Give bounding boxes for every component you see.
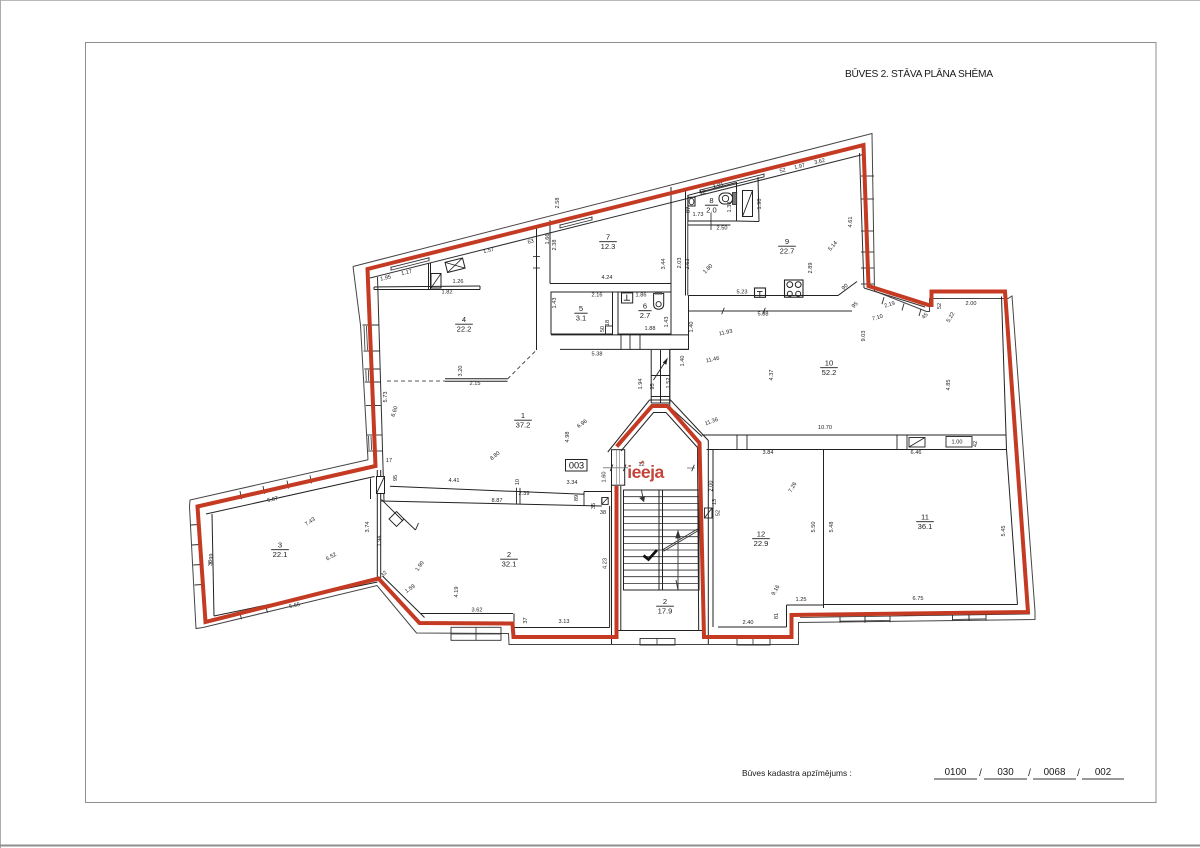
svg-text:37.2: 37.2 bbox=[516, 421, 531, 430]
svg-text:1.40: 1.40 bbox=[689, 322, 695, 333]
svg-text:35: 35 bbox=[591, 503, 597, 509]
svg-text:3.13: 3.13 bbox=[559, 619, 570, 625]
svg-text:10: 10 bbox=[825, 359, 833, 368]
svg-text:1.43: 1.43 bbox=[664, 317, 670, 328]
svg-text:5.23: 5.23 bbox=[737, 290, 748, 296]
svg-text:5.38: 5.38 bbox=[592, 352, 603, 358]
svg-text:9: 9 bbox=[785, 237, 789, 246]
svg-text:2.16: 2.16 bbox=[592, 293, 603, 299]
svg-text:/: / bbox=[979, 768, 982, 779]
svg-text:1.94: 1.94 bbox=[638, 379, 644, 390]
svg-text:2.00: 2.00 bbox=[709, 481, 715, 492]
svg-text:002: 002 bbox=[1095, 767, 1111, 778]
svg-text:81: 81 bbox=[774, 613, 780, 619]
svg-text:1.88: 1.88 bbox=[645, 326, 656, 332]
svg-text:52: 52 bbox=[937, 303, 943, 309]
svg-text:17.9: 17.9 bbox=[658, 607, 673, 616]
svg-text:3.62: 3.62 bbox=[472, 608, 483, 614]
svg-text:4.98: 4.98 bbox=[565, 432, 571, 443]
svg-text:003: 003 bbox=[569, 461, 584, 471]
svg-text:6: 6 bbox=[643, 302, 647, 311]
svg-text:32.1: 32.1 bbox=[502, 560, 517, 569]
svg-text:38: 38 bbox=[600, 510, 606, 516]
svg-text:3: 3 bbox=[278, 541, 282, 550]
svg-text:3.44: 3.44 bbox=[661, 259, 667, 270]
svg-text:1.94: 1.94 bbox=[377, 536, 383, 547]
svg-text:95: 95 bbox=[393, 475, 399, 481]
svg-text:2: 2 bbox=[663, 597, 667, 606]
svg-text:22.1: 22.1 bbox=[273, 550, 288, 559]
svg-text:22.9: 22.9 bbox=[754, 539, 769, 548]
svg-text:1.26: 1.26 bbox=[453, 279, 464, 285]
svg-text:11: 11 bbox=[921, 513, 929, 522]
svg-text:50: 50 bbox=[600, 326, 606, 332]
svg-text:2.50: 2.50 bbox=[717, 226, 728, 232]
svg-text:1.66: 1.66 bbox=[545, 234, 551, 245]
svg-text:030: 030 bbox=[997, 767, 1014, 778]
svg-text:13: 13 bbox=[712, 499, 718, 505]
svg-text:BŪVES 2. STĀVA PLĀNA SHĒMA: BŪVES 2. STĀVA PLĀNA SHĒMA bbox=[845, 68, 993, 80]
svg-text:10: 10 bbox=[515, 479, 521, 485]
svg-text:2.38: 2.38 bbox=[552, 240, 558, 251]
svg-text:2.40: 2.40 bbox=[743, 620, 754, 626]
svg-text:1.38: 1.38 bbox=[727, 202, 733, 213]
svg-text:1.00: 1.00 bbox=[952, 440, 963, 446]
svg-text:6.75: 6.75 bbox=[913, 596, 924, 602]
svg-text:1.86: 1.86 bbox=[636, 293, 647, 299]
svg-text:17: 17 bbox=[386, 458, 392, 464]
svg-text:22.7: 22.7 bbox=[780, 247, 795, 256]
svg-text:8: 8 bbox=[709, 196, 713, 205]
svg-text:1.43: 1.43 bbox=[552, 298, 558, 309]
svg-text:Būves kadastra apzīmējums :: Būves kadastra apzīmējums : bbox=[742, 768, 852, 778]
svg-text:5.50: 5.50 bbox=[811, 522, 817, 533]
svg-text:0068: 0068 bbox=[1044, 767, 1066, 778]
svg-text:5: 5 bbox=[579, 304, 583, 313]
svg-text:3.74: 3.74 bbox=[365, 522, 371, 533]
svg-text:0100: 0100 bbox=[945, 767, 967, 778]
svg-text:/: / bbox=[1077, 768, 1080, 779]
svg-text:1.40: 1.40 bbox=[680, 356, 686, 367]
svg-text:52: 52 bbox=[715, 510, 721, 516]
svg-text:10.70: 10.70 bbox=[818, 425, 832, 431]
svg-text:5.38: 5.38 bbox=[758, 312, 769, 318]
svg-text:3.84: 3.84 bbox=[763, 450, 774, 456]
svg-text:3.34: 3.34 bbox=[567, 480, 578, 486]
svg-text:2.00: 2.00 bbox=[966, 301, 977, 307]
svg-text:2.03: 2.03 bbox=[677, 258, 683, 269]
svg-text:1: 1 bbox=[521, 411, 525, 420]
svg-text:87: 87 bbox=[686, 207, 692, 213]
svg-text:6.46: 6.46 bbox=[911, 450, 922, 456]
svg-text:52.2: 52.2 bbox=[822, 368, 837, 377]
svg-text:5.45: 5.45 bbox=[1001, 526, 1007, 537]
svg-text:3.1: 3.1 bbox=[576, 314, 587, 323]
svg-text:5.73: 5.73 bbox=[383, 392, 389, 403]
svg-text:4: 4 bbox=[462, 315, 466, 324]
svg-text:1.98: 1.98 bbox=[757, 199, 763, 210]
svg-text:2.58: 2.58 bbox=[555, 198, 561, 209]
svg-text:4.23: 4.23 bbox=[602, 558, 608, 569]
svg-text:2.63: 2.63 bbox=[685, 259, 691, 270]
svg-text:2.0: 2.0 bbox=[706, 206, 717, 215]
svg-text:4.24: 4.24 bbox=[602, 275, 613, 281]
svg-text:1.25: 1.25 bbox=[796, 597, 807, 603]
svg-text:8.87: 8.87 bbox=[492, 498, 503, 504]
svg-text:38: 38 bbox=[208, 560, 214, 566]
svg-text:5.48: 5.48 bbox=[829, 522, 835, 533]
svg-text:37: 37 bbox=[523, 617, 529, 623]
svg-text:/: / bbox=[1028, 768, 1031, 779]
svg-text:4.19: 4.19 bbox=[454, 587, 460, 598]
svg-text:12.3: 12.3 bbox=[601, 242, 616, 251]
svg-text:2.7: 2.7 bbox=[640, 311, 651, 320]
svg-text:2.39: 2.39 bbox=[519, 491, 530, 497]
svg-text:89: 89 bbox=[574, 495, 580, 501]
svg-text:4.41: 4.41 bbox=[449, 478, 460, 484]
svg-text:22.2: 22.2 bbox=[457, 325, 472, 334]
svg-text:1.82: 1.82 bbox=[442, 290, 453, 296]
svg-text:4.37: 4.37 bbox=[769, 370, 775, 381]
svg-text:18: 18 bbox=[605, 320, 611, 326]
svg-text:4.61: 4.61 bbox=[848, 217, 854, 228]
svg-text:1.60: 1.60 bbox=[602, 472, 608, 483]
svg-text:9.03: 9.03 bbox=[861, 331, 867, 342]
svg-text:ieeja: ieeja bbox=[627, 462, 664, 482]
svg-text:4.85: 4.85 bbox=[946, 380, 952, 391]
svg-text:95: 95 bbox=[650, 383, 656, 389]
svg-text:2: 2 bbox=[507, 550, 511, 559]
svg-text:36.1: 36.1 bbox=[918, 522, 933, 531]
svg-text:1.52: 1.52 bbox=[666, 378, 672, 389]
svg-text:1.73: 1.73 bbox=[693, 212, 704, 218]
svg-text:3.20: 3.20 bbox=[458, 366, 464, 377]
svg-text:2.15: 2.15 bbox=[470, 381, 481, 387]
svg-text:12: 12 bbox=[757, 530, 765, 539]
svg-text:7: 7 bbox=[606, 233, 610, 242]
svg-text:42: 42 bbox=[973, 441, 979, 447]
svg-text:2.89: 2.89 bbox=[808, 263, 814, 274]
